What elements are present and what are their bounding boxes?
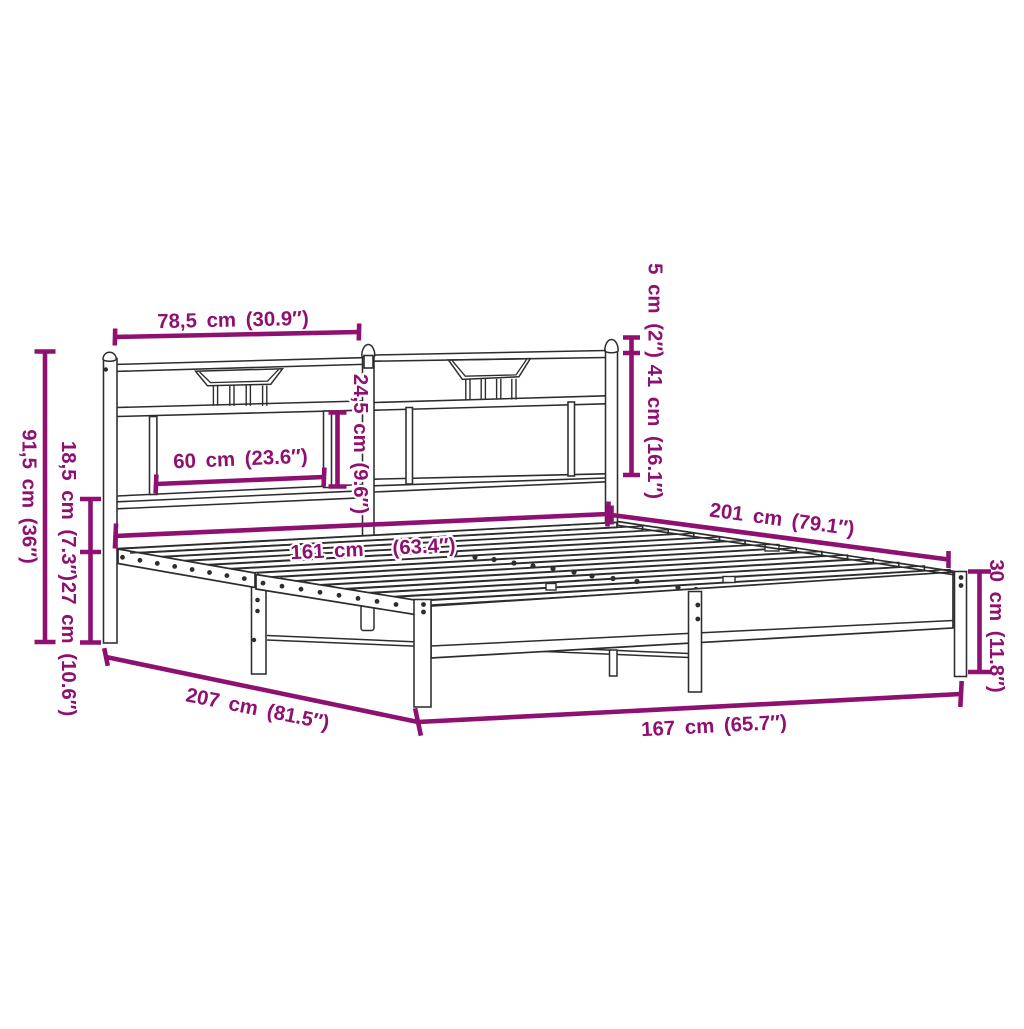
- svg-text:24,5 cm (9.6″): 24,5 cm (9.6″): [349, 374, 371, 514]
- svg-text:18,5 cm (7.3″): 18,5 cm (7.3″): [57, 441, 79, 581]
- svg-text:78,5 cm (30.9″): 78,5 cm (30.9″): [157, 308, 309, 333]
- svg-text:91,5 cm (36″): 91,5 cm (36″): [18, 429, 40, 564]
- svg-text:30 cm (11.8″): 30 cm (11.8″): [985, 559, 1007, 692]
- svg-text:5 cm (2″): 5 cm (2″): [644, 263, 666, 358]
- svg-text:41 cm (16.1″): 41 cm (16.1″): [643, 365, 665, 500]
- svg-text:27 cm (10.6″): 27 cm (10.6″): [57, 582, 79, 717]
